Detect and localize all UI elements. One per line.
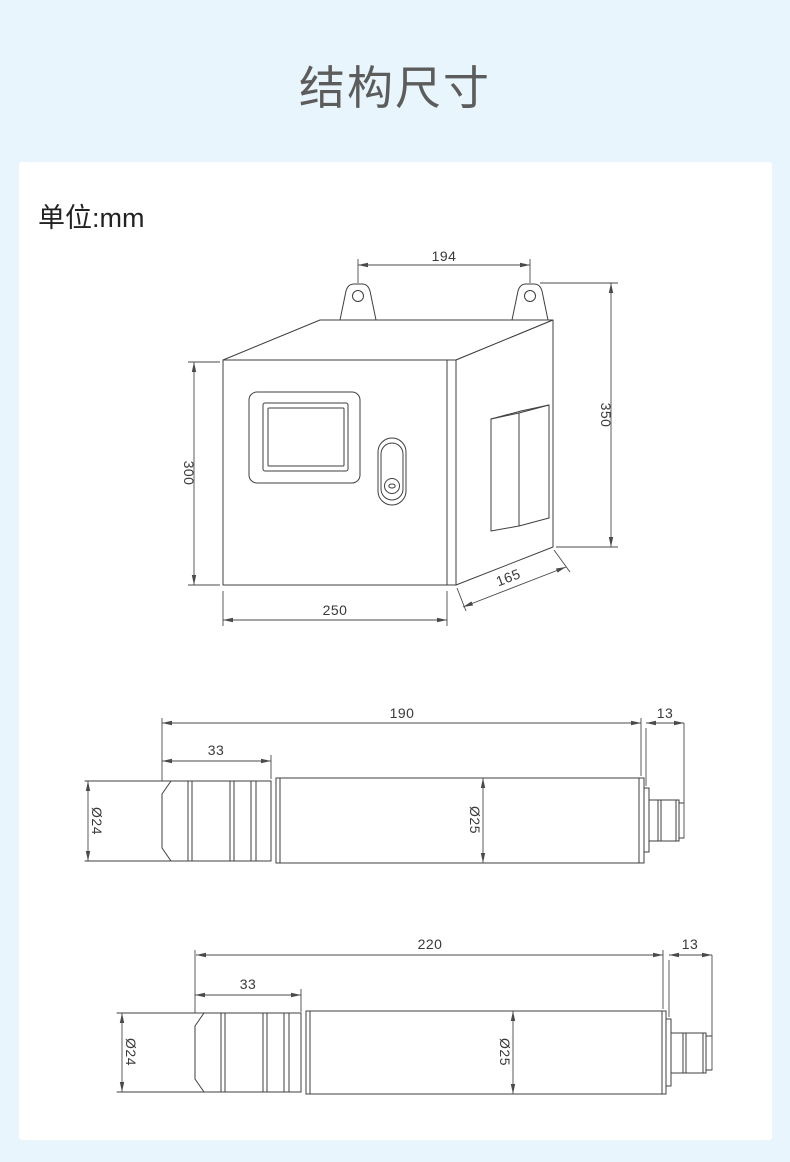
sensor-b-connector-flange [666,1019,671,1086]
dim-label-head-length-b: 33 [240,976,257,992]
dim-label-head-diameter-b: Ø24 [123,1038,139,1066]
dim-label-overall-height: 350 [598,403,614,428]
dim-label-mount-spacing: 194 [432,248,457,264]
sensor-190-drawing: 190 13 33 Ø24 Ø25 [85,705,684,863]
dim-label-head-diameter-a: Ø24 [89,807,105,835]
control-box-drawing: 194 350 300 250 165 [181,248,618,626]
dim-label-body-length-a: 190 [390,705,415,721]
dim-label-front-height: 300 [181,461,197,486]
dim-label-connector-a: 13 [657,705,674,721]
side-vent-front [491,413,519,531]
dim-label-body-length-b: 220 [418,936,443,952]
structure-dimension-drawing: 194 350 300 250 165 [0,0,790,1162]
dim-label-body-diameter-b: Ø25 [497,1038,513,1066]
sensor-220-drawing: 220 13 33 Ø24 Ø25 [117,936,712,1094]
dim-label-connector-b: 13 [682,936,699,952]
dim-label-body-diameter-a: Ø25 [467,806,483,834]
box-front-face [223,360,456,585]
dim-label-front-width: 250 [323,602,348,618]
dim-label-head-length-a: 33 [208,742,225,758]
sensor-a-connector-flange [644,788,649,852]
